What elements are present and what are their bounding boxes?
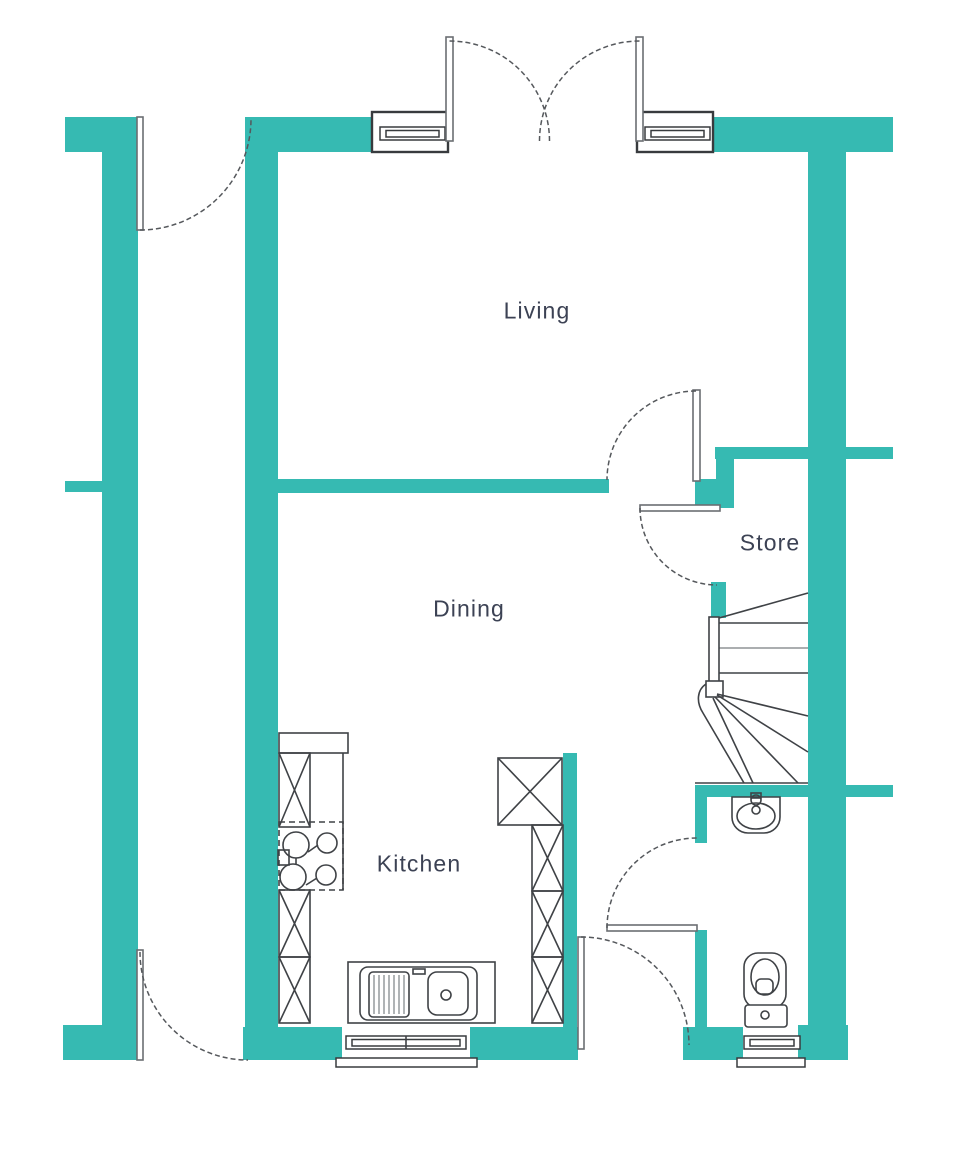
wall-wc-west-upper bbox=[695, 797, 707, 843]
sink-icon bbox=[348, 962, 495, 1023]
wall-wc-west-lower bbox=[695, 930, 707, 1027]
room-label-living: Living bbox=[504, 298, 571, 325]
toilet-icon bbox=[744, 953, 787, 1027]
wall-store-hinge-block bbox=[695, 479, 716, 505]
window-top-left bbox=[372, 112, 448, 152]
wall-store-jamb bbox=[711, 582, 726, 618]
wall-bottom-1 bbox=[243, 1027, 342, 1060]
wall-bottom-4 bbox=[798, 1025, 848, 1060]
hob-icon bbox=[278, 822, 343, 890]
room-label-dining: Dining bbox=[433, 596, 505, 623]
wall-dining-west bbox=[245, 117, 278, 1060]
door-wc-icon bbox=[607, 838, 697, 931]
kitchen-units-left bbox=[279, 753, 310, 1023]
floor-plan: Living Dining Kitchen Store bbox=[0, 0, 960, 1153]
wall-right bbox=[808, 152, 846, 1060]
walls bbox=[63, 117, 893, 1060]
floor-plan-drawing bbox=[0, 0, 960, 1153]
wall-left-stub bbox=[65, 481, 102, 492]
door-store-icon bbox=[640, 505, 720, 585]
window-kitchen-bottom bbox=[336, 1036, 477, 1067]
door-side-top-icon bbox=[137, 117, 251, 230]
door-front-bottom-icon bbox=[137, 950, 248, 1060]
staircase-icon bbox=[695, 593, 808, 783]
wall-kitchen-east bbox=[563, 753, 577, 1027]
kitchen-worktop bbox=[279, 733, 348, 890]
wall-right-stub-mid bbox=[846, 447, 893, 459]
wall-living-divider bbox=[278, 479, 609, 493]
room-label-kitchen: Kitchen bbox=[377, 851, 461, 878]
wall-left-foot bbox=[63, 1025, 139, 1060]
wall-bottom-2 bbox=[470, 1027, 578, 1060]
wall-top-east bbox=[709, 117, 893, 152]
window-top-right bbox=[637, 112, 713, 152]
wall-bottom-3 bbox=[683, 1027, 743, 1060]
wall-left bbox=[102, 117, 138, 1060]
window-wc-bottom bbox=[737, 1036, 805, 1067]
kitchen-units-right bbox=[498, 758, 563, 1023]
wall-right-stub-lower bbox=[843, 785, 893, 797]
basin-icon bbox=[732, 793, 780, 833]
wall-store-top bbox=[715, 447, 808, 459]
french-doors-icon bbox=[446, 37, 643, 141]
door-living-icon bbox=[607, 390, 700, 481]
room-label-store: Store bbox=[740, 530, 800, 557]
door-rear-icon bbox=[578, 937, 689, 1049]
